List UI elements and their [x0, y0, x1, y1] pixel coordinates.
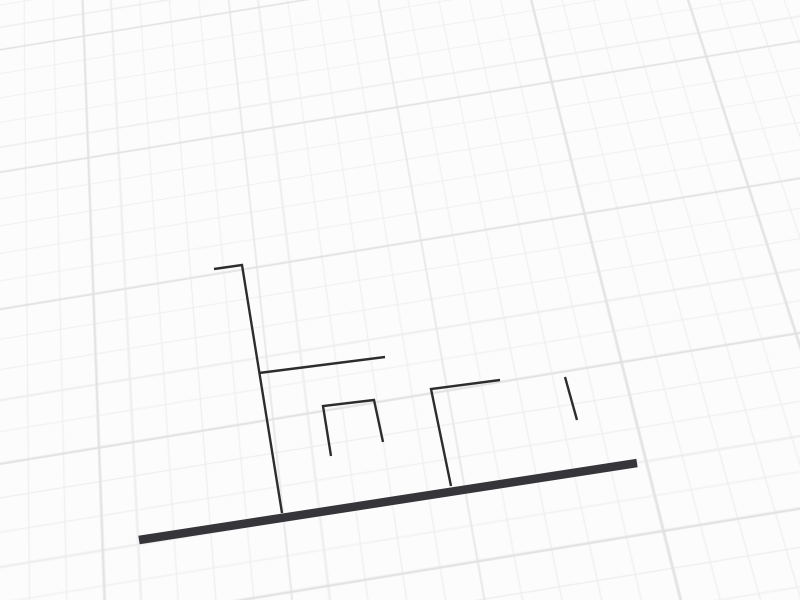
- stroke-ground-line[interactable]: [139, 463, 637, 540]
- stroke-post[interactable]: [565, 377, 577, 420]
- stroke-arch[interactable]: [323, 400, 383, 456]
- canvas-viewport[interactable]: [0, 0, 800, 600]
- stroke-branch[interactable]: [259, 357, 385, 373]
- stroke-wall-with-cap[interactable]: [214, 265, 282, 513]
- stroke-flag-corner[interactable]: [431, 380, 500, 486]
- drawing-layer: [0, 0, 800, 600]
